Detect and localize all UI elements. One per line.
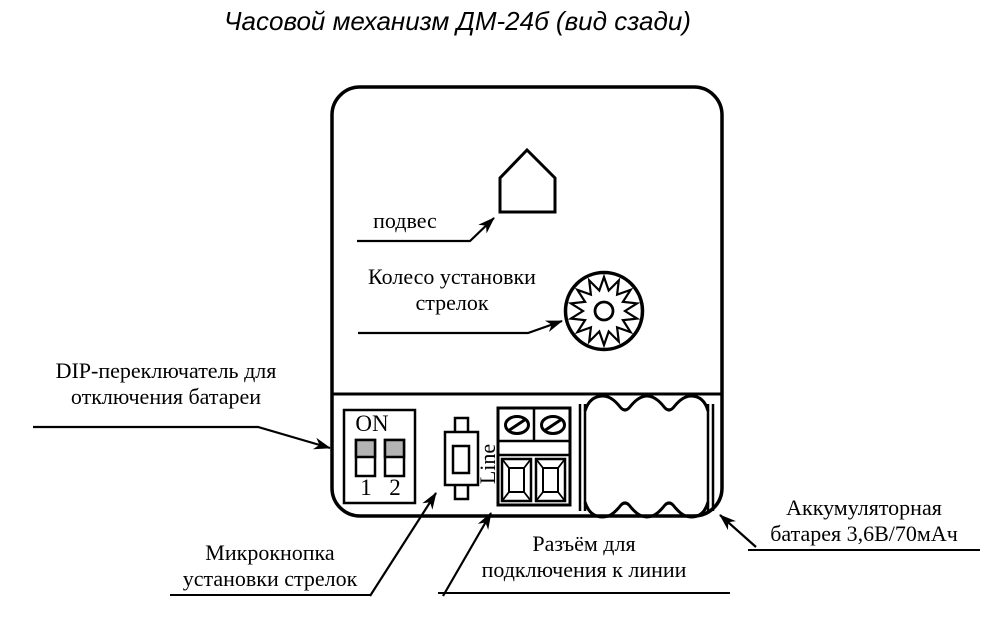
wheel-label: Колесо установки стрелок	[352, 264, 552, 316]
wire-port-2	[536, 459, 565, 501]
button-label-line2: установки стрелок	[170, 566, 370, 596]
dip-label: DIP-переключатель для отключения батареи	[28, 358, 304, 410]
button-label-line1: Микрокнопка	[170, 540, 370, 566]
wire-port-1	[502, 459, 531, 501]
dip-on-label: ON	[350, 412, 394, 436]
dip-label-line2: отключения батареи	[28, 384, 304, 410]
setting-wheel	[566, 273, 643, 350]
connector-label-line1: Разъём для	[438, 531, 730, 557]
hanger-label: подвес	[360, 208, 450, 234]
dip-pos1-label: 1	[355, 476, 377, 500]
connector-label: Разъём для подключения к линии	[438, 531, 730, 594]
battery-label-line1: Аккумуляторная	[748, 495, 980, 521]
button-label: Микрокнопка установки стрелок	[170, 540, 370, 596]
wheel-label-line2: стрелок	[352, 290, 552, 316]
dip-label-line1: DIP-переключатель для	[28, 358, 304, 384]
diagram-page: Часовой механизм ДМ-24б (вид сзади) подв…	[0, 0, 995, 623]
battery-label: Аккумуляторная батарея 3,6В/70мАч	[748, 495, 980, 551]
battery-label-line2: батарея 3,6В/70мАч	[748, 521, 980, 551]
connector-label-line2: подключения к линии	[438, 557, 730, 583]
dip-switch-2-slider[interactable]	[385, 440, 404, 457]
leader-arrow-dip	[33, 427, 330, 448]
dip-pos2-label: 2	[384, 476, 406, 500]
micro-button-plunger	[453, 446, 469, 473]
page-title: Часовой механизм ДМ-24б (вид сзади)	[180, 6, 735, 36]
wheel-label-line1: Колесо установки	[352, 264, 552, 290]
dip-switch-1-slider[interactable]	[356, 440, 375, 457]
line-connector	[498, 408, 570, 505]
setting-wheel-hub	[595, 302, 613, 320]
line-connector-label: Line	[476, 428, 500, 500]
